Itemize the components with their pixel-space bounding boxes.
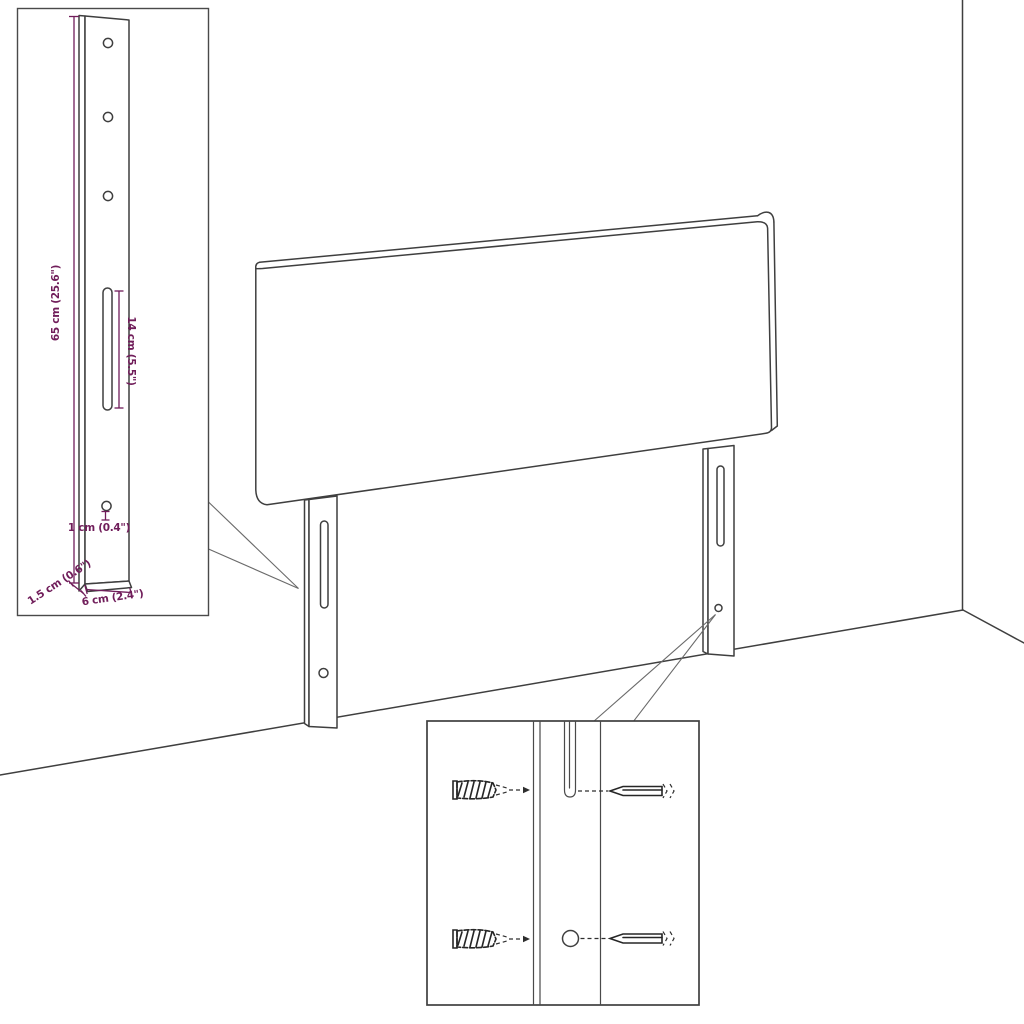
slot-length-label: 14 cm (5.5"): [125, 316, 137, 385]
mounting-callout: [593, 615, 716, 723]
headboard-panel: [256, 212, 778, 505]
right-leg-hole: [715, 605, 722, 612]
inset-leg-hole-lower: [103, 191, 112, 200]
height-label: 65 cm (25.6"): [50, 265, 62, 341]
mounting-inset-frame: [427, 721, 699, 1005]
mounting-detail-inset: [427, 721, 699, 1005]
inset-leg-side-face: [79, 16, 85, 592]
headboard-top-left-curl: [256, 262, 260, 268]
left-leg-hole: [319, 669, 328, 678]
left-leg: [305, 496, 338, 728]
headboard-top-right-curl: [758, 212, 774, 222]
headboard-front-face: [256, 222, 772, 505]
inset-leg-slot: [103, 288, 112, 410]
hole-diameter-label: 1 cm (0.4"): [68, 522, 130, 534]
headboard-right-bottom-cap: [772, 426, 778, 431]
leg-inset-callout: [209, 502, 299, 589]
inset2-hole: [563, 931, 579, 947]
leg-detail-inset: 65 cm (25.6") 14 cm (5.5") 1 cm (0.4") 1…: [18, 9, 209, 616]
headboard-right-edge: [774, 222, 777, 426]
inset-leg-pilot-hole: [102, 501, 111, 510]
right-leg-slot: [717, 466, 724, 546]
inset-leg-hole-top: [103, 38, 112, 47]
inset-leg-hole-mid: [103, 112, 112, 121]
headboard-diagram-svg: 65 cm (25.6") 14 cm (5.5") 1 cm (0.4") 1…: [0, 0, 1024, 1024]
floor-line-right: [963, 610, 1024, 643]
diagram-canvas: 65 cm (25.6") 14 cm (5.5") 1 cm (0.4") 1…: [0, 0, 1024, 1024]
left-leg-slot: [321, 521, 329, 608]
